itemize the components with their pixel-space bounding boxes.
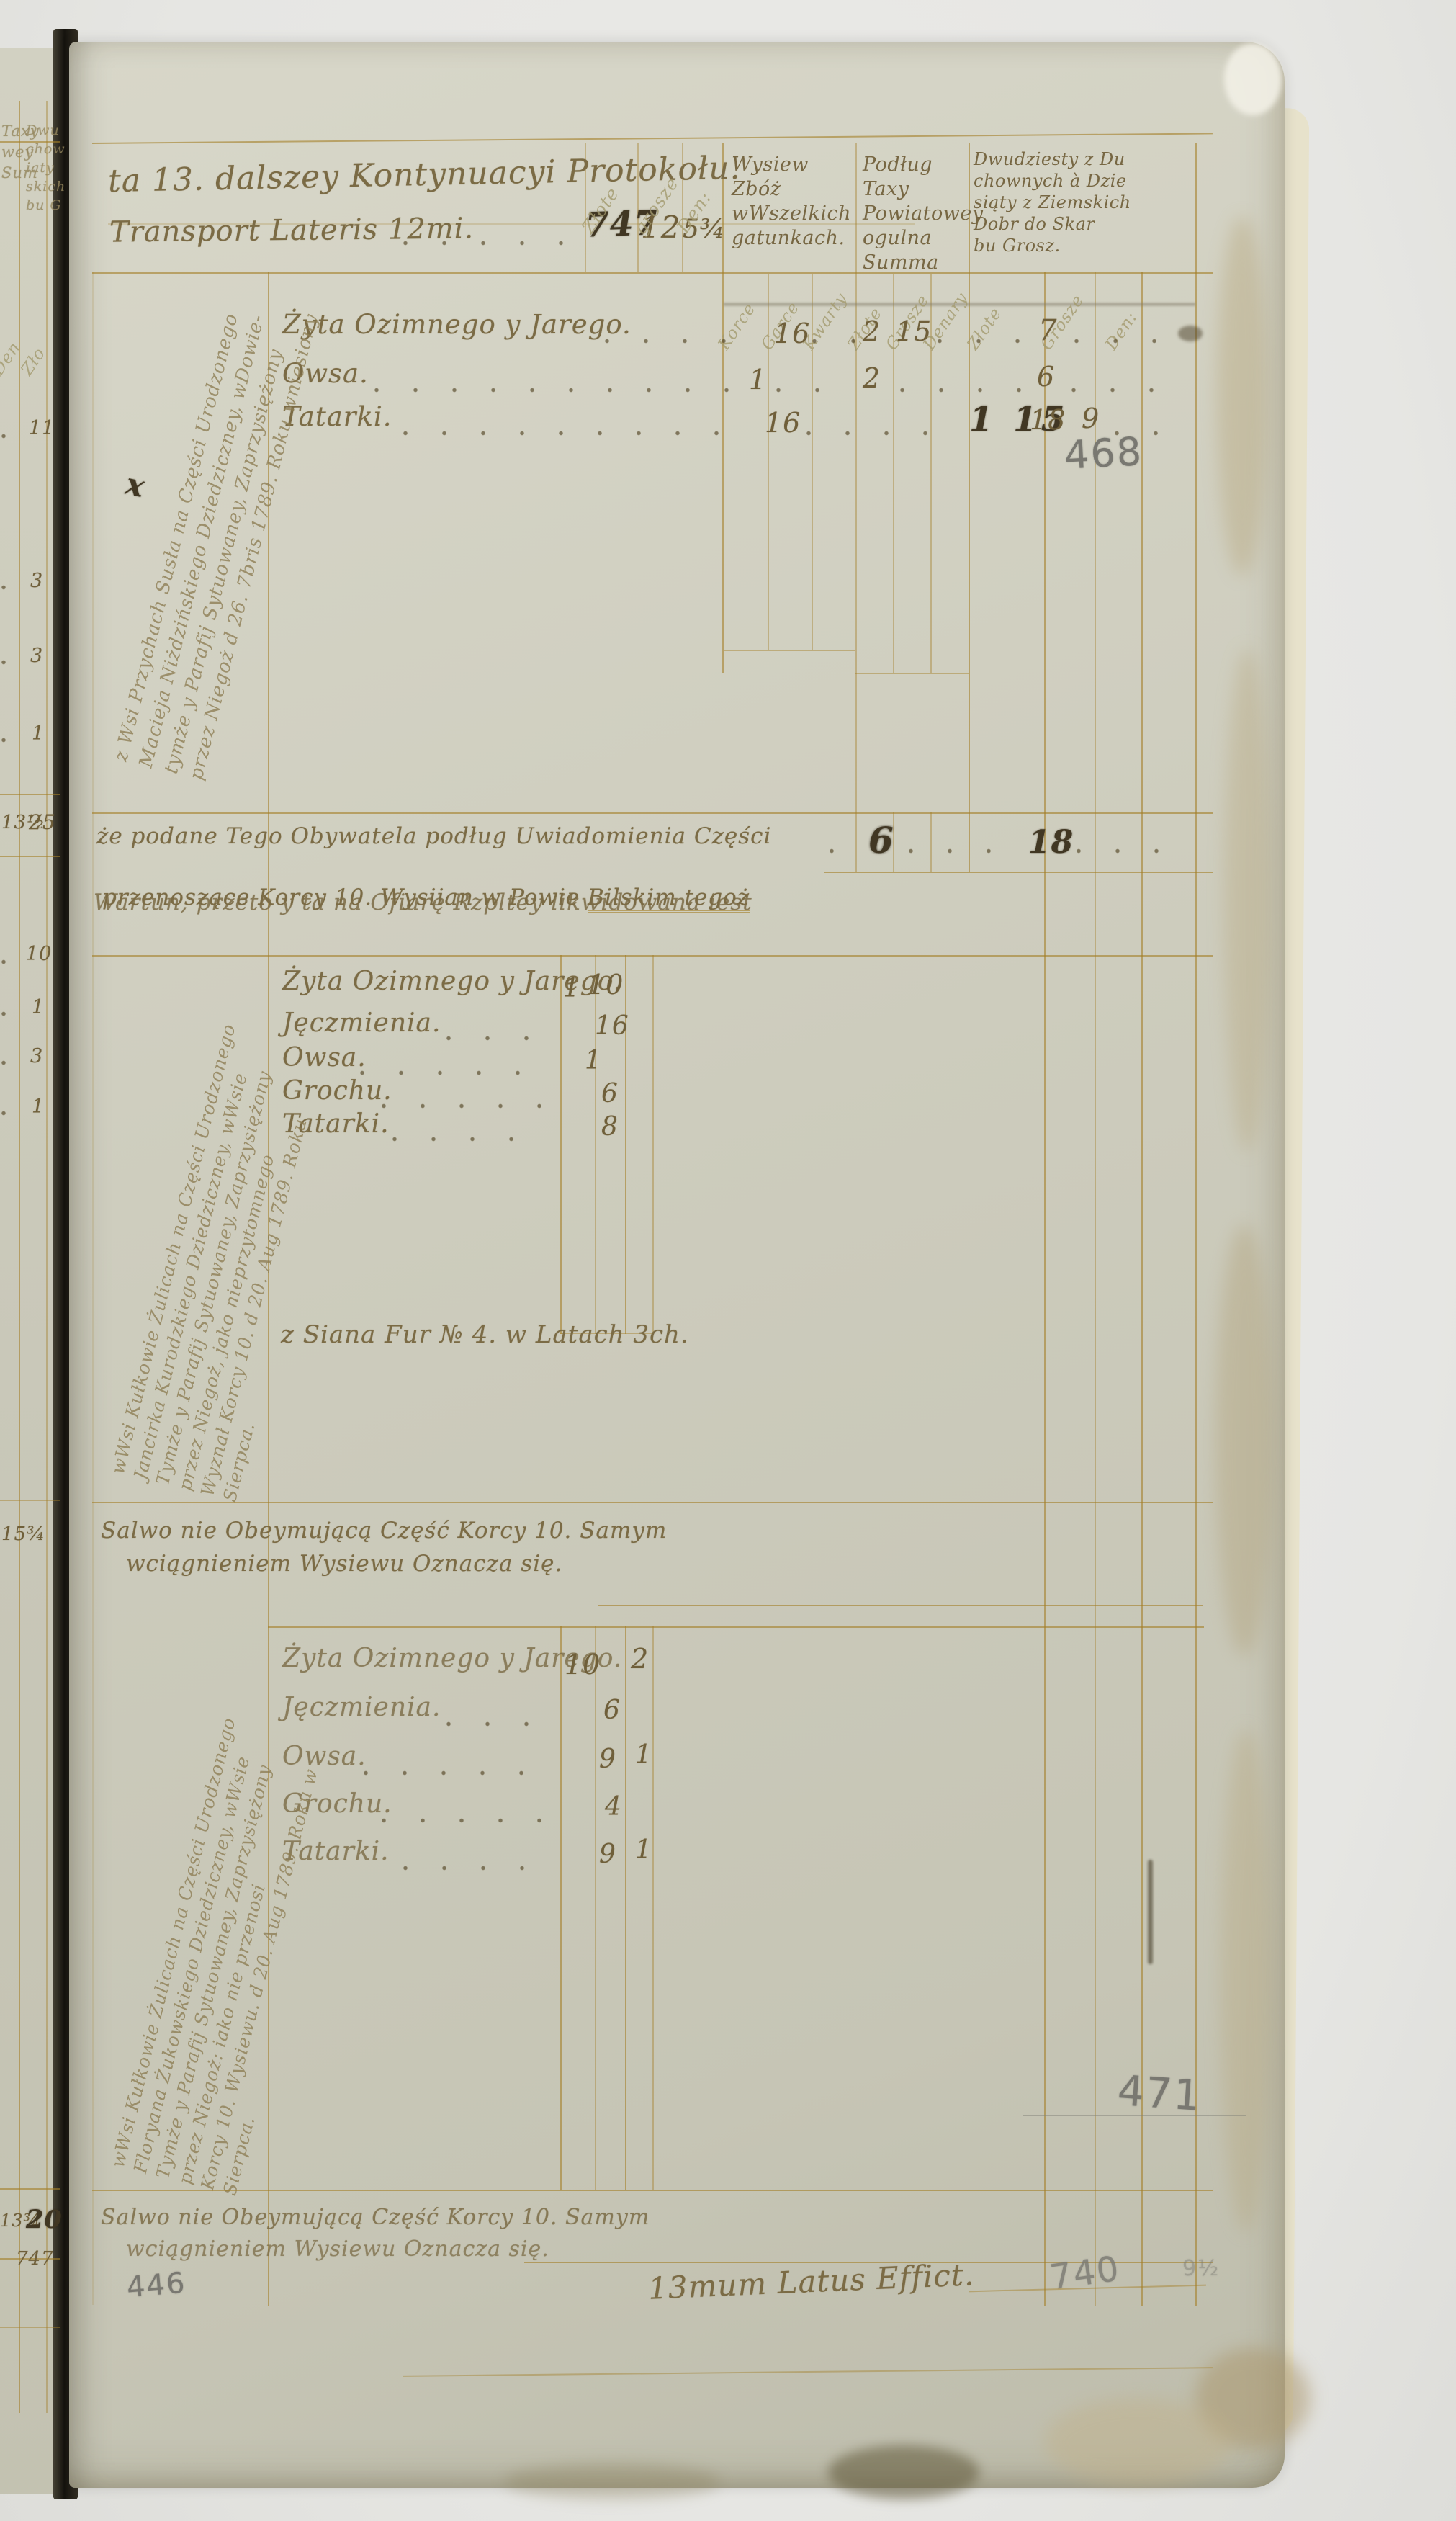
dotted-leader — [776, 388, 854, 393]
left-page-sum: 15¾ — [1, 1523, 45, 1546]
left-page-sum: 747 — [16, 2247, 54, 2271]
left-page-value: 3 — [30, 1044, 43, 1069]
middle-note-line: Wartun, przeto y ta na Ofiarę Rzpltey li… — [94, 889, 752, 917]
paper-scrap — [1224, 43, 1282, 115]
torn-edge-stain — [1217, 216, 1267, 576]
ruling-line — [92, 2190, 1213, 2191]
dotted-leader — [830, 848, 862, 854]
left-page-value: 1 — [32, 995, 45, 1020]
left-page-value: 3 — [30, 569, 43, 594]
salvo-note-line: wciągnieniem Wysiewu Oznacza się. — [126, 1550, 562, 1578]
crop-row-value: 15 — [896, 315, 932, 349]
crop-row-value: 6 — [1037, 360, 1055, 395]
dotted-leader — [806, 431, 954, 436]
bottom-stain — [504, 2463, 720, 2499]
crop-row-label: Żyta Ozimnego y Jarego. — [282, 308, 632, 341]
ruling-line — [92, 1502, 1213, 1503]
crop-row-value: 1 — [585, 1044, 602, 1077]
column-header-wysiew: Wysiew Zbóż wWszelkich gatunkach. — [732, 153, 854, 251]
dotted-leader — [1, 738, 26, 743]
dotted-leader — [364, 1770, 546, 1776]
crop-row-value: 8 — [601, 1111, 619, 1143]
dotted-leader — [403, 241, 576, 246]
siana-note: z Siana Fur № 4. w Latach 3ch. — [281, 1320, 689, 1351]
dotted-leader — [382, 1103, 546, 1109]
dotted-leader — [1077, 848, 1185, 854]
ruling-line — [598, 1605, 1203, 1606]
pencil-number-faint: 9½ — [1182, 2256, 1220, 2281]
crop-row-value: 16 — [765, 406, 801, 441]
pencil-number-468: 468 — [1063, 429, 1143, 478]
dotted-leader — [403, 1866, 546, 1871]
crop-row-value: 9 — [599, 1838, 616, 1871]
dotted-leader — [909, 848, 1020, 854]
left-page-value: 3 — [30, 644, 43, 668]
crop-row-value: 2 — [863, 362, 881, 396]
crop-row-value: 6 — [601, 1078, 619, 1110]
salvo-note-line: Salwo nie Obeymującą Część Korcy 10. Sam… — [101, 1517, 667, 1545]
left-page-value: 1 — [32, 1095, 45, 1119]
crop-row-value: 9 — [599, 1743, 616, 1776]
left-page-header-fragment: Dwu chow iaty skich bu G — [26, 121, 66, 215]
dotted-leader — [1, 959, 26, 964]
left-page-sum: 25 — [29, 810, 56, 835]
left-page-value: 10 — [26, 942, 52, 967]
crop-row-value: 1 — [749, 363, 767, 398]
dotted-leader — [403, 431, 738, 436]
dotted-leader — [446, 1036, 547, 1041]
crop-row-value: 2 — [863, 315, 881, 349]
footer-note-line: Salwo nie Obeymującą Część Korcy 10. Sam… — [101, 2204, 650, 2231]
ink-smudge — [1178, 326, 1203, 341]
left-page-value: 1 — [32, 722, 45, 746]
crop-row-value: 1 — [635, 1739, 652, 1771]
dotted-leader — [812, 339, 855, 344]
dotted-leader — [1, 1011, 26, 1016]
crop-row-value: 16 — [774, 317, 810, 351]
torn-edge-stain — [1224, 648, 1270, 1152]
left-page-value: 11 — [29, 416, 55, 441]
dotted-leader — [446, 1721, 547, 1727]
bottom-stain — [828, 2445, 979, 2499]
column-header-podatek: Dwudziesty z Du chownych à Dzie siąty z … — [974, 148, 1132, 256]
pencil-line — [1023, 2115, 1246, 2116]
crop-row-value: 6 — [603, 1694, 621, 1727]
middle-note-line: że podane Tego Obywatela podług Uwiadomi… — [96, 823, 771, 851]
dotted-leader — [382, 1818, 546, 1823]
middle-note-value-grosze: 18 — [1028, 823, 1074, 862]
crop-row-value: 10 — [588, 968, 624, 1003]
crop-row-value: 18 — [1030, 403, 1066, 438]
dotted-leader — [605, 339, 756, 344]
ink-streak — [1148, 1860, 1153, 1964]
dotted-leader — [900, 388, 1030, 393]
footer-note-line: wciągnieniem Wysiewu Oznacza się. — [126, 2236, 549, 2263]
column-header-taxa: Podług Taxy Powiatowey ogulna Summa — [863, 153, 967, 275]
manuscript-photo: Taxy wey Sum Dwu chow iaty skich bu G De… — [0, 0, 1456, 2521]
dotted-leader — [392, 1137, 546, 1142]
dotted-leader — [1, 660, 26, 665]
pencil-page-number-446: 446 — [125, 2266, 187, 2304]
dotted-leader — [1, 434, 26, 439]
crop-row-value: 1 — [563, 972, 580, 1005]
dotted-leader — [1, 1111, 26, 1116]
dotted-leader — [1074, 339, 1182, 344]
dotted-leader — [374, 388, 734, 393]
torn-edge-stain — [1221, 1729, 1271, 2233]
dotted-leader — [938, 339, 1030, 344]
crop-row-value: 4 — [605, 1791, 622, 1823]
crop-row-value: 1 — [635, 1834, 652, 1866]
torn-edge-stain — [1215, 1224, 1273, 1657]
middle-note-value-zlote: 6 — [868, 818, 894, 864]
pencil-number-471: 471 — [1116, 2066, 1203, 2121]
crop-row-value: 2 — [631, 1642, 649, 1677]
dotted-leader — [1, 1060, 26, 1065]
dotted-leader — [1, 585, 26, 590]
crop-row-value: 7 — [1038, 313, 1057, 349]
left-page-sum: 20 — [26, 2204, 63, 2236]
crop-row-value: 16 — [595, 1010, 629, 1042]
edge-stain — [1044, 2399, 1231, 2485]
dotted-leader — [1071, 388, 1187, 393]
crop-row-value: 10 — [565, 1648, 601, 1683]
left-page-edge — [0, 48, 60, 2494]
